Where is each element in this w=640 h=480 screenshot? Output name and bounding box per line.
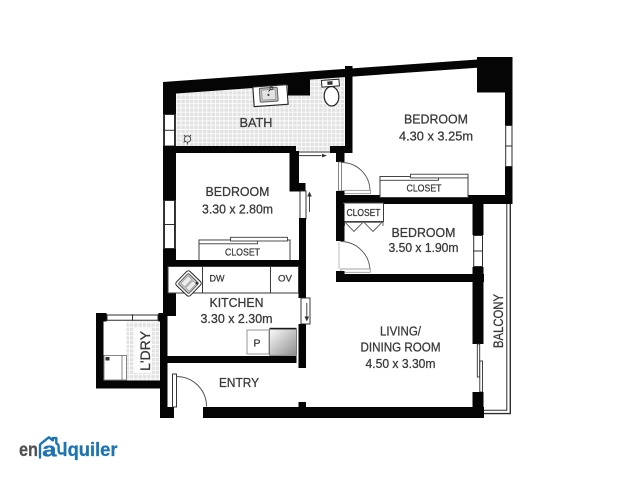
svg-text:KITCHEN: KITCHEN <box>210 295 264 310</box>
svg-text:BATH: BATH <box>240 115 273 130</box>
svg-text:BALCONY: BALCONY <box>491 294 506 348</box>
svg-text:ENTRY: ENTRY <box>219 375 259 390</box>
svg-text:3.30 x 2.80m: 3.30 x 2.80m <box>202 202 273 217</box>
svg-text:OV: OV <box>278 274 293 285</box>
svg-text:lquiler: lquiler <box>63 439 118 461</box>
svg-text:3.50 x 1.90m: 3.50 x 1.90m <box>389 240 459 255</box>
svg-text:en: en <box>19 439 38 461</box>
svg-text:3.30 x 2.30m: 3.30 x 2.30m <box>201 311 273 326</box>
svg-text:DW: DW <box>210 274 225 285</box>
svg-text:BEDROOM: BEDROOM <box>392 225 456 240</box>
svg-text:L'DRY: L'DRY <box>138 331 153 371</box>
svg-text:BEDROOM: BEDROOM <box>206 184 270 199</box>
svg-text:P: P <box>253 338 260 350</box>
svg-text:4.30 x 3.25m: 4.30 x 3.25m <box>399 129 473 144</box>
svg-text:CLOSET: CLOSET <box>347 208 381 219</box>
svg-text:4.50 x 3.30m: 4.50 x 3.30m <box>366 356 436 371</box>
svg-text:LIVING/: LIVING/ <box>380 323 421 338</box>
svg-text:DINING ROOM: DINING ROOM <box>361 340 441 355</box>
svg-text:CLOSET: CLOSET <box>225 248 260 259</box>
svg-text:CLOSET: CLOSET <box>407 184 442 195</box>
svg-text:BEDROOM: BEDROOM <box>404 112 468 127</box>
